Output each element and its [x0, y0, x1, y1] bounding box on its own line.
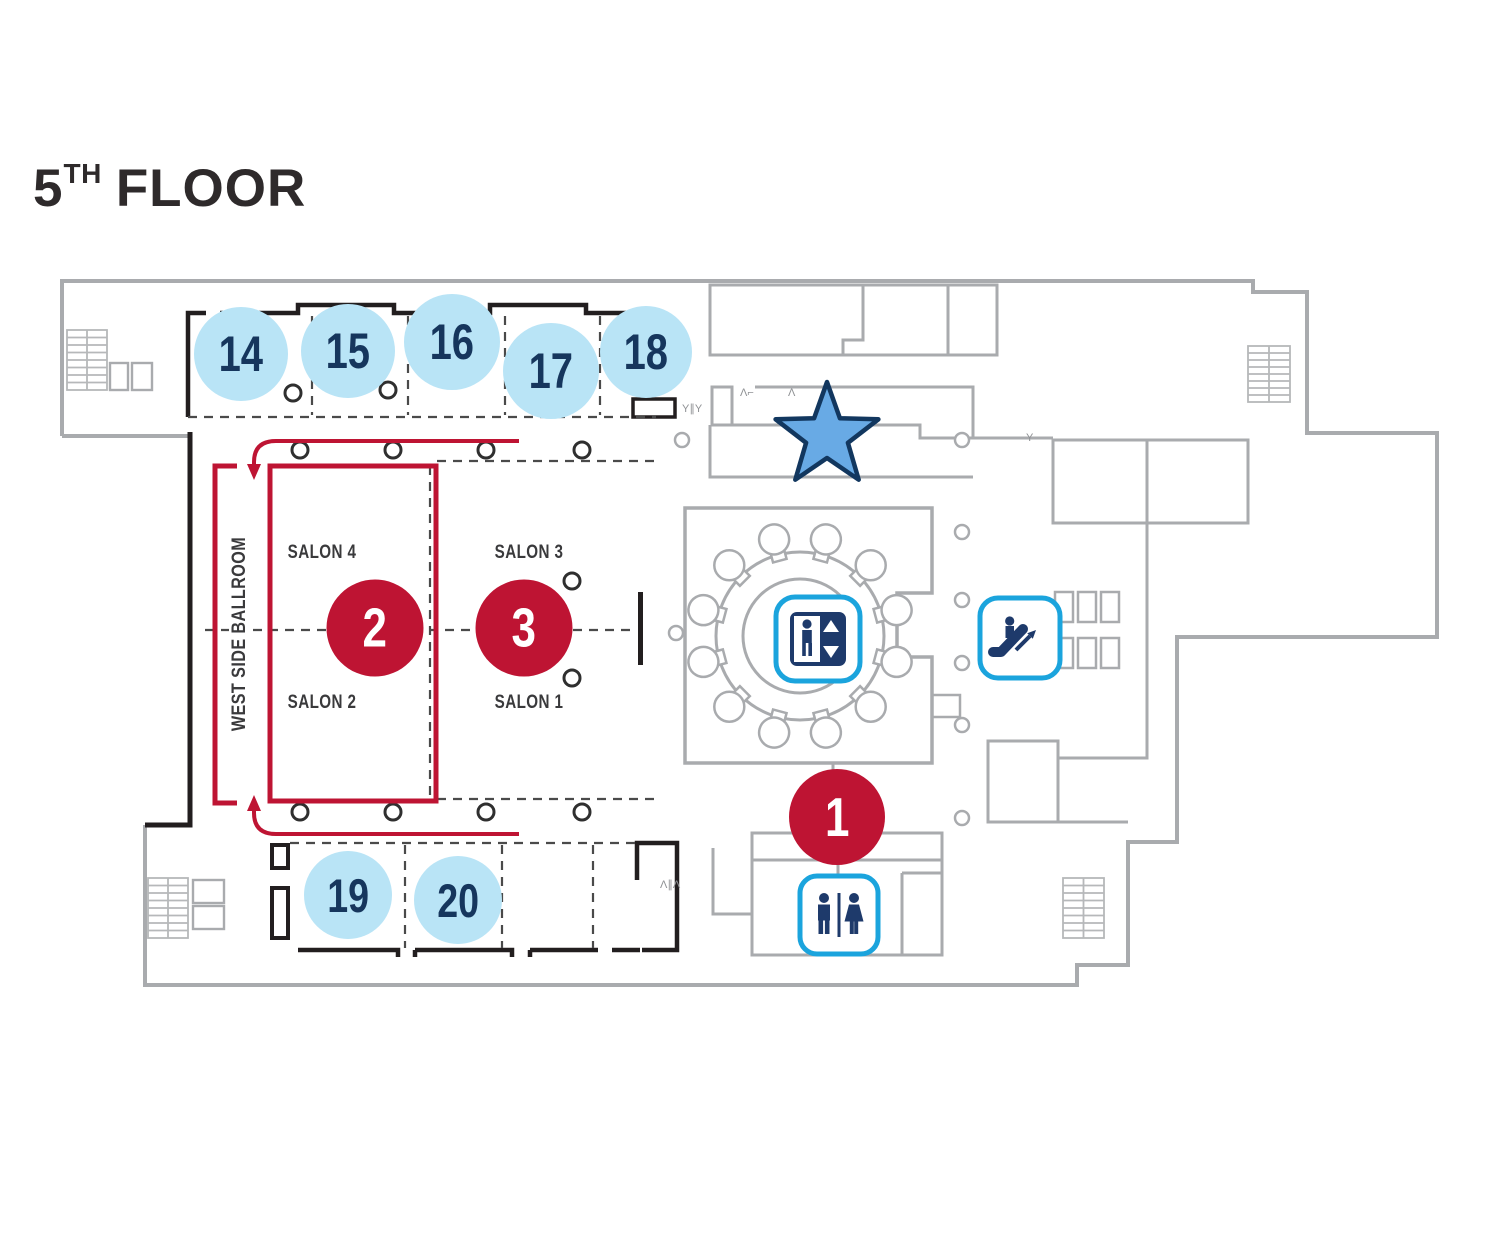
marker-room-20: 20 [414, 856, 502, 944]
salon-1-label: SALON 1 [486, 692, 572, 714]
floor-number: 5 [33, 159, 63, 218]
stairs-top-right-icon [1248, 346, 1290, 402]
marker-room-17: 17 [503, 323, 599, 419]
svg-text:Λ: Λ [788, 387, 796, 399]
svg-text:Y∥Y: Y∥Y [682, 403, 703, 415]
ballroom-label: WEST SIDE BALLROOM [229, 517, 251, 752]
floor-plan-page: Λ⌐ Λ Y∥Y Y Λ∥Λ 5THFLOOR WEST SIDE BALLRO… [0, 0, 1500, 1250]
marker-room-18: 18 [600, 306, 692, 398]
floor-word: FLOOR [116, 159, 306, 218]
salon-3-label: SALON 3 [486, 542, 572, 564]
page-title: 5THFLOOR [33, 158, 306, 219]
floor-suffix: TH [63, 158, 101, 189]
restroom-icon [800, 876, 878, 954]
marker-location-1: 1 [789, 769, 885, 865]
svg-text:Λ∥Λ: Λ∥Λ [660, 879, 681, 891]
stairs-bottom-right-icon [1063, 878, 1104, 938]
marker-location-2: 2 [327, 580, 424, 677]
svg-text:Λ⌐: Λ⌐ [740, 387, 754, 399]
salon-2-label: SALON 2 [279, 692, 365, 714]
marker-location-3: 3 [476, 580, 573, 677]
svg-text:Y: Y [1026, 432, 1034, 444]
marker-room-15: 15 [301, 304, 395, 398]
stairs-bottom-left-icon [148, 878, 224, 938]
marker-room-16: 16 [404, 294, 500, 390]
marker-room-19: 19 [304, 851, 392, 939]
marker-room-14: 14 [194, 307, 288, 401]
elevator-icon [776, 597, 860, 681]
escalator-icon [980, 598, 1060, 678]
salon-4-label: SALON 4 [279, 542, 365, 564]
stairs-top-left-icon [67, 330, 152, 390]
